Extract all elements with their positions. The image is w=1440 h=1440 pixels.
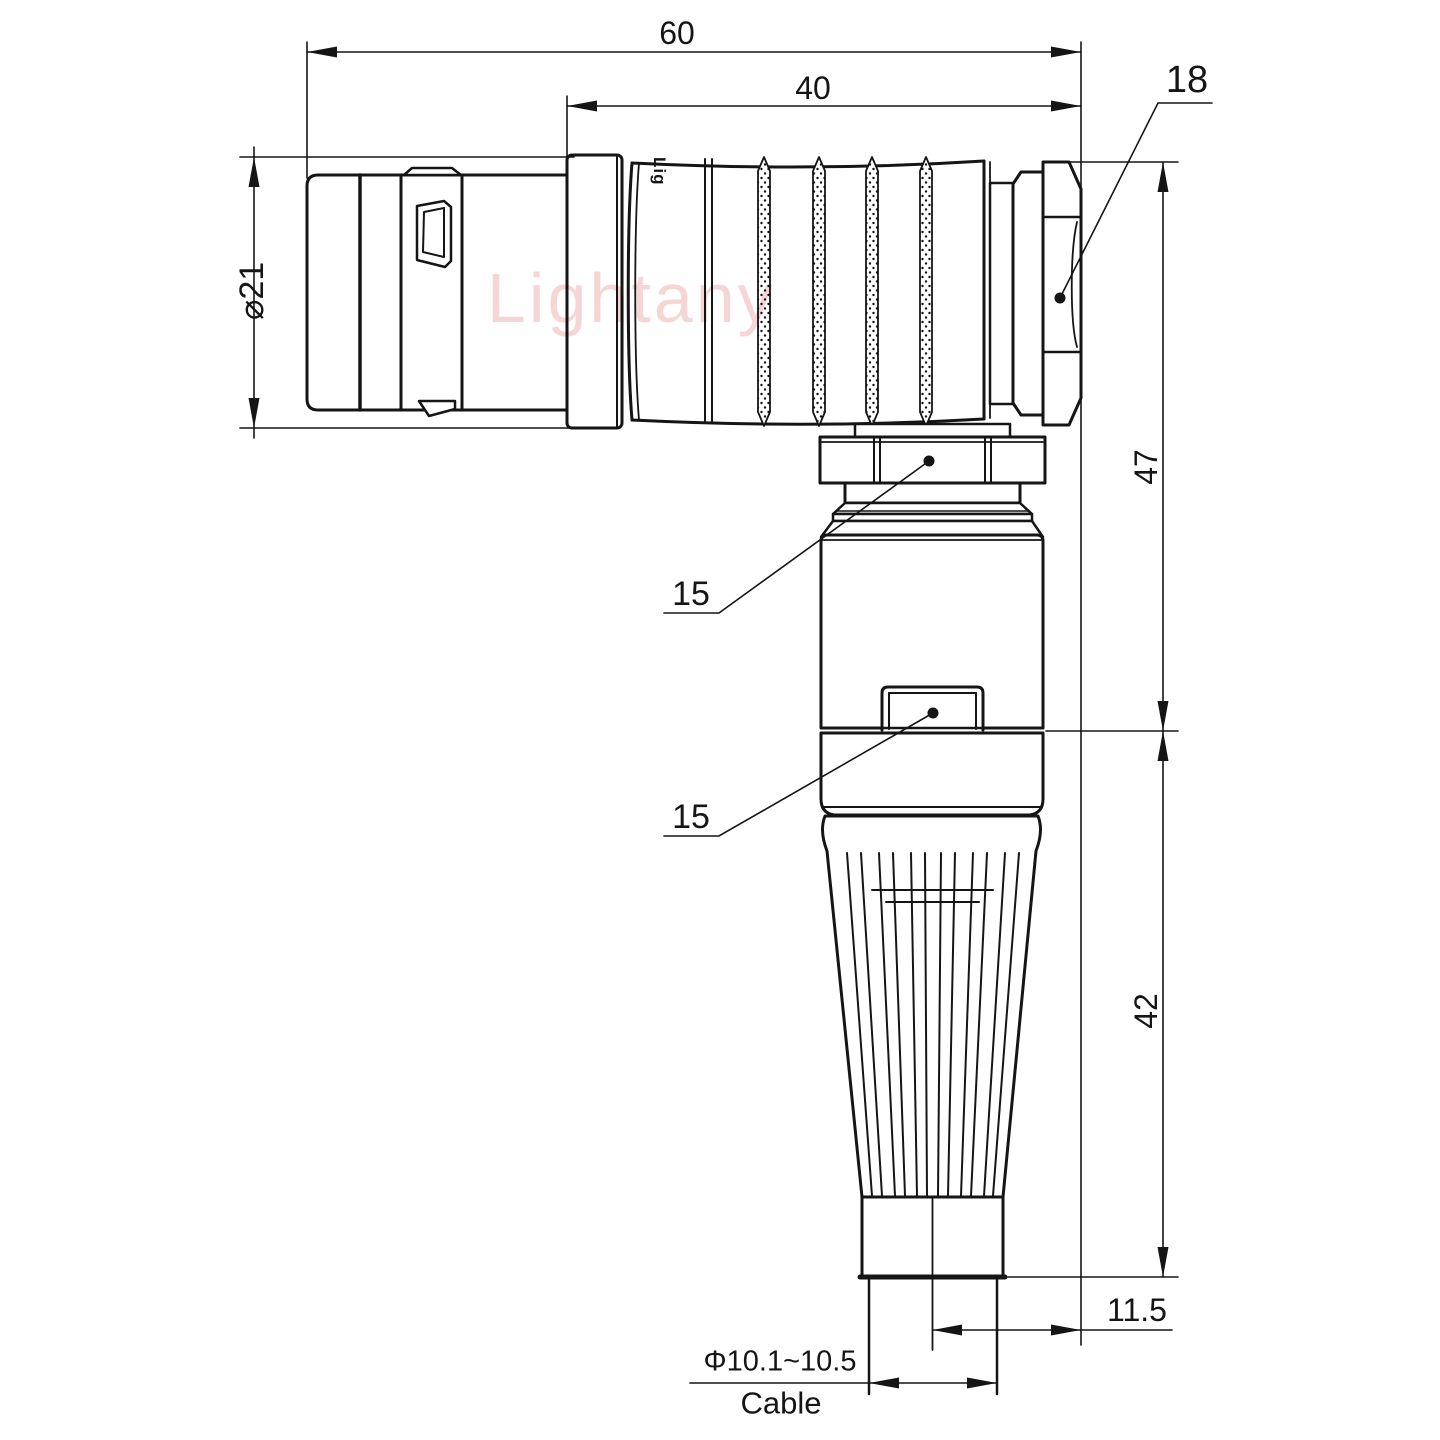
- dim-body-flats-label: 15: [672, 800, 710, 834]
- dim-hex-nut-label: 18: [1166, 61, 1208, 99]
- brand-marking-on-body: Lig: [649, 157, 669, 186]
- dim-cable-offset-label: 11.5: [1107, 1294, 1167, 1326]
- dim-overall-length-label: 60: [659, 17, 695, 49]
- latch-release-tab: [404, 168, 461, 175]
- rear-hex-nut-assembly: [990, 162, 1081, 425]
- dim-rear-length-label: 40: [795, 72, 831, 104]
- strain-relief: [823, 816, 1041, 1197]
- technical-drawing-page: Lightany Lig 60 40 18 ⌀21 15 15 47 42 11…: [0, 0, 1440, 1440]
- rear-neck: [990, 183, 1013, 404]
- dim-cable-diameter: [690, 1378, 997, 1389]
- dim-cable-diameter-label: Φ10.1~10.5: [704, 1348, 857, 1377]
- elbow-neck: [845, 483, 1020, 503]
- nut-washer: [1013, 172, 1043, 415]
- knurl-band: [813, 157, 825, 426]
- elbow-section: [820, 424, 1045, 815]
- knurl-band: [866, 157, 878, 426]
- polarization-mark: [419, 401, 455, 416]
- knurl-band: [920, 157, 932, 426]
- cable-label: Cable: [741, 1388, 822, 1419]
- watermark: Lightany: [487, 258, 776, 338]
- dim-elbow-nut-label: 15: [672, 577, 710, 611]
- cable-end: [860, 1197, 1005, 1394]
- connector-dimension-drawing: [0, 0, 1440, 1440]
- dim-upper-height-label: 47: [1130, 449, 1162, 485]
- connector-side-view: [307, 155, 1081, 1394]
- dim-front-diameter-label: ⌀21: [235, 262, 269, 320]
- dim-lower-height-label: 42: [1130, 993, 1162, 1029]
- elbow-body-lower: [821, 733, 1043, 815]
